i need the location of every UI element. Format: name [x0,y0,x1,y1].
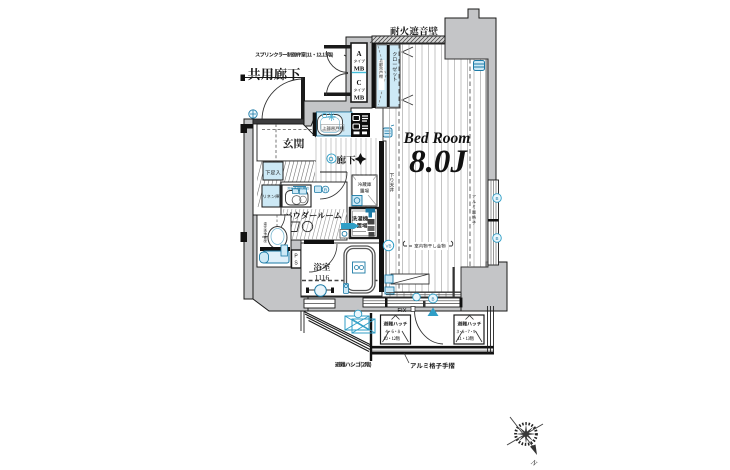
svg-text:A: A [356,50,361,58]
svg-text:MB: MB [354,66,365,73]
svg-text:B: B [495,236,498,241]
svg-text:VB: VB [385,244,391,249]
svg-text:B: B [431,297,434,302]
svg-text:B: B [495,196,498,201]
svg-text:MB: MB [354,95,365,102]
svg-text:C: C [356,79,361,87]
svg-text:8.0J: 8.0J [409,144,468,180]
svg-text:R: R [324,188,328,194]
